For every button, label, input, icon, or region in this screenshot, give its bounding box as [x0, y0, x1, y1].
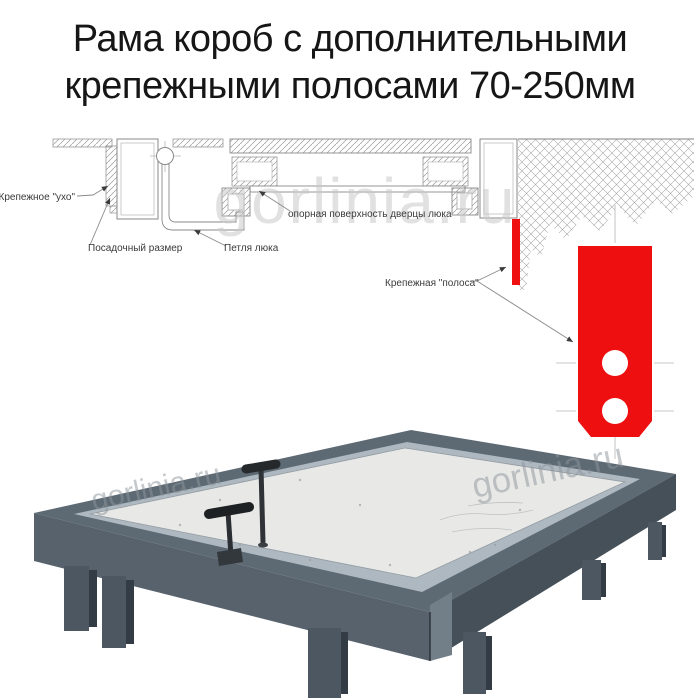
title-line-2: крепежными полосами 70-250мм: [0, 63, 700, 110]
label-seat-size: Посадочный размер: [88, 243, 183, 254]
left-frame-profile: [117, 139, 158, 219]
strip-hole-bottom: [602, 398, 628, 424]
mounting-ear-strip: [106, 146, 117, 206]
label-hatch-hinge: Петля люка: [224, 243, 279, 254]
top-bar: [173, 139, 223, 147]
technical-drawing: gorlinia.ru Крепежное "ухо" Посадочный р…: [0, 139, 694, 459]
ceiling-plate: [53, 139, 112, 147]
door-plate: [230, 139, 471, 153]
watermark-text: gorlinia.ru: [213, 165, 516, 237]
title-line-1: Рама короб с дополнительными: [0, 16, 700, 63]
page-title: Рама короб с дополнительными крепежными …: [0, 16, 700, 110]
figure-canvas: gorlinia.ru Крепежное "ухо" Посадочный р…: [0, 125, 700, 700]
strip-hole-top: [602, 350, 628, 376]
label-door-support-surface: опорная поверхность дверцы люка: [288, 209, 452, 220]
mounting-strip-detail: [578, 246, 652, 437]
label-mounting-ear: Крепежное "ухо": [0, 192, 75, 203]
label-mounting-strip: Крепежная "полоса": [385, 278, 479, 289]
product-photo: gorlinia.ru gorlinia.ru: [34, 430, 676, 698]
